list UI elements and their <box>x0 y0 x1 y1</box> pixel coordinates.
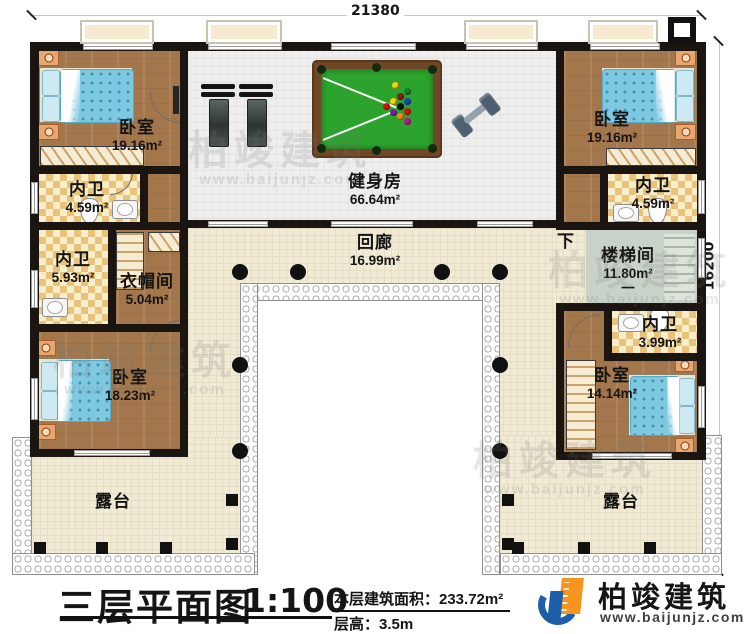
window <box>477 221 533 227</box>
pillow <box>41 362 58 391</box>
floor-height-text: 层高：3.5m <box>334 613 413 634</box>
barbell <box>201 92 235 97</box>
pillow <box>676 96 694 122</box>
wall-stairwell-top <box>556 222 706 230</box>
nightstand <box>36 340 56 356</box>
room-label-terrace-right: 露台 <box>581 492 661 512</box>
weight-bench <box>247 99 267 147</box>
room-label-bath-ml: 内卫 5.93m² <box>33 250 113 285</box>
billiard-ball <box>397 103 404 110</box>
wall-cloakroom-bottom <box>30 324 188 332</box>
column <box>492 357 508 373</box>
barbell <box>239 92 273 97</box>
railing-post <box>578 542 590 554</box>
bed-duvet <box>60 69 134 123</box>
nightstand <box>675 438 694 453</box>
table-pocket <box>317 144 326 153</box>
room-label-bath-tr: 内卫 4.59m² <box>613 176 693 211</box>
room-label-bedroom-bl: 卧室 18.23m² <box>85 368 175 403</box>
window <box>698 180 705 214</box>
billiard-ball <box>390 98 397 105</box>
billiard-ball <box>404 118 411 125</box>
railing-post <box>644 542 656 554</box>
window <box>331 43 416 50</box>
nightstand <box>675 124 696 140</box>
plan-title: 三层平面图 <box>58 577 253 631</box>
title-underline <box>60 616 332 619</box>
courtyard-void <box>258 301 482 575</box>
table-pocket <box>372 146 381 155</box>
wall-bathbr-bottom <box>604 353 706 361</box>
floor-area-text: 本层建筑面积：233.72m² <box>334 588 503 609</box>
wall-bathtr-left <box>600 166 608 230</box>
room-label-bedroom-br: 卧室 14.14m² <box>567 366 657 401</box>
barbell <box>201 84 235 89</box>
room-label-stairwell: 楼梯间 11.80m² 一 <box>583 246 673 297</box>
billiard-table <box>312 60 442 158</box>
room-label-cloakroom: 衣帽间 5.04m² <box>102 272 192 307</box>
nightstand <box>38 50 59 66</box>
column <box>232 264 248 280</box>
hall-tr-floor <box>564 174 604 222</box>
room-label-gym: 健身房 66.64m² <box>325 172 425 207</box>
cloakroom-wardrobe <box>148 232 180 252</box>
room-label-bedroom-tl: 卧室 19.16m² <box>92 118 182 153</box>
wall-bedroomtl-bottom <box>30 166 188 174</box>
wall-bedroombr-top <box>556 303 706 311</box>
window <box>31 182 38 214</box>
column <box>232 443 248 459</box>
column <box>492 443 508 459</box>
cue-line <box>323 109 397 140</box>
wall-bedroombr-left <box>556 303 564 460</box>
room-label-bedroom-tr: 卧室 19.16m² <box>567 110 657 145</box>
pillow <box>41 391 58 420</box>
table-pocket <box>372 63 381 72</box>
billiard-ball <box>404 108 411 115</box>
room-label-bath-tl: 内卫 4.59m² <box>47 180 127 215</box>
railing-post <box>512 542 524 554</box>
bay-window <box>464 20 538 44</box>
pillow <box>679 406 695 434</box>
room-label-bath-br: 内卫 3.99m² <box>620 315 700 350</box>
railing-post <box>160 542 172 554</box>
window <box>698 238 705 278</box>
window <box>208 221 268 227</box>
window <box>466 43 538 50</box>
plan-scale: 1:100 <box>243 581 348 620</box>
billiard-felt <box>321 69 433 149</box>
window <box>83 43 153 50</box>
chimney <box>668 17 696 43</box>
window <box>31 378 38 420</box>
pillow <box>42 96 60 122</box>
billiard-ball <box>397 113 404 120</box>
billiard-ball <box>392 82 399 89</box>
railing-post <box>96 542 108 554</box>
wall-bathtl-right <box>140 166 148 230</box>
nightstand <box>38 124 59 140</box>
bay-window <box>80 20 154 44</box>
railing-post <box>226 538 238 550</box>
billiard-ball <box>390 109 397 116</box>
railing-post <box>34 542 46 554</box>
bay-window <box>206 20 282 44</box>
window <box>590 43 660 50</box>
wall-gym-right <box>556 42 564 228</box>
void-railing-top <box>240 283 500 301</box>
column <box>232 357 248 373</box>
void-railing-left <box>240 283 258 575</box>
terrace-right-railing-bottom <box>500 553 722 575</box>
window <box>331 221 413 227</box>
wall-leftwing-right <box>180 42 188 457</box>
railing-post <box>502 494 514 506</box>
brand-website: www.baijunjz.com <box>600 609 745 625</box>
pillow <box>42 70 60 96</box>
window <box>592 453 672 459</box>
column <box>290 264 306 280</box>
brand-logo-icon <box>538 576 594 628</box>
wardrobe <box>606 148 696 166</box>
room-label-terrace-left: 露台 <box>73 492 153 512</box>
column <box>492 264 508 280</box>
nightstand <box>675 50 696 66</box>
room-label-corridor: 回廊 16.99m² <box>325 233 425 268</box>
billiard-ball <box>404 88 411 95</box>
column <box>434 264 450 280</box>
nightstand <box>36 424 56 440</box>
billiard-ball <box>397 93 404 100</box>
window <box>208 43 282 50</box>
table-pocket <box>317 65 326 74</box>
bay-window <box>588 20 658 44</box>
billiard-ball <box>404 98 411 105</box>
void-railing-right <box>482 283 500 575</box>
sink <box>42 298 68 317</box>
wall-bedroomtr-bottom <box>556 166 706 174</box>
window <box>74 450 150 456</box>
stair-direction-mark: 一 <box>583 281 673 297</box>
barbell <box>239 84 273 89</box>
door-leaf <box>173 86 179 114</box>
table-pocket <box>428 65 437 74</box>
dimension-width-label: 21380 <box>347 3 404 19</box>
stairs-down-annotation: 下 <box>552 232 580 252</box>
title-underline-thin <box>332 610 510 612</box>
railing-post <box>226 494 238 506</box>
pillow <box>676 70 694 96</box>
table-pocket <box>428 144 437 153</box>
window <box>698 386 705 428</box>
terrace-left-railing-bottom <box>12 553 255 575</box>
billiard-ball <box>383 103 390 110</box>
weight-bench <box>209 99 229 147</box>
pillow <box>679 378 695 406</box>
floor-plan-page: { "dimensions": { "width_label": "21380"… <box>0 0 750 634</box>
